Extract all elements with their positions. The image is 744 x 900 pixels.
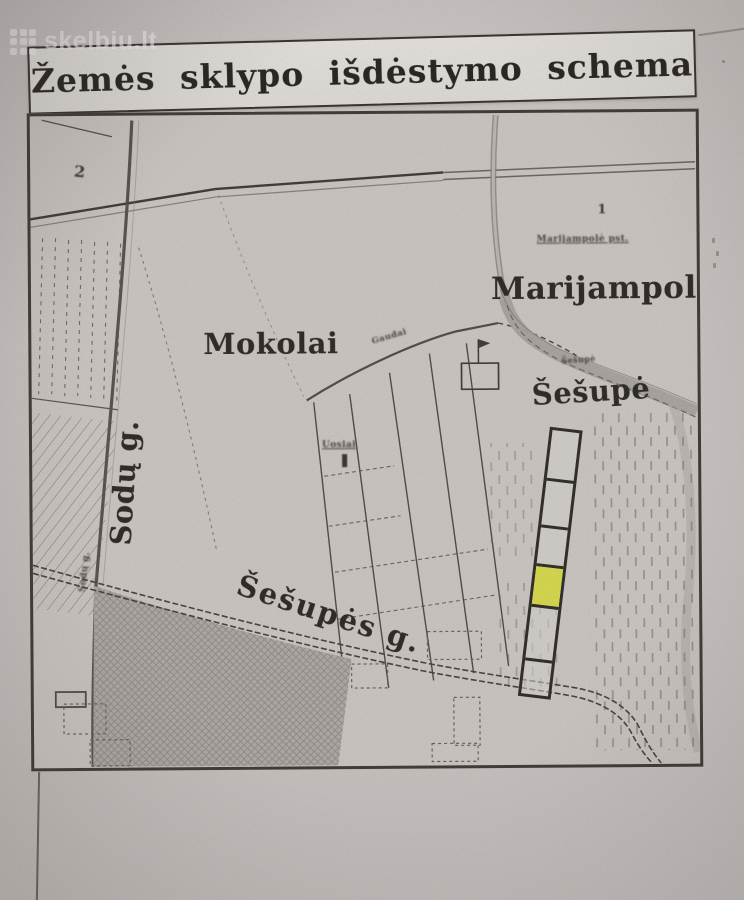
map-symbol-mark bbox=[342, 454, 347, 467]
watermark-text: skelbiu.lt bbox=[44, 27, 157, 56]
paper-speck bbox=[712, 238, 715, 243]
station-symbol: 1 bbox=[597, 202, 606, 217]
city-label-marijampole: Marijampolė bbox=[491, 270, 703, 308]
paper-edge-line bbox=[698, 28, 744, 36]
plot-cell bbox=[536, 527, 567, 569]
watermark: skelbiu.lt bbox=[10, 27, 157, 56]
river-label-sesupe: Šešupė bbox=[531, 371, 651, 412]
paper-speck bbox=[722, 60, 725, 63]
paper-speck bbox=[713, 263, 716, 268]
settlement-label-mokolai: Mokolai bbox=[203, 326, 338, 361]
table-rule-below-map bbox=[36, 772, 40, 900]
plot-block-label-small: Uosiai bbox=[322, 440, 356, 450]
plot-cell bbox=[541, 481, 573, 531]
plot-cell bbox=[521, 660, 552, 696]
dashed-boundaries-center bbox=[138, 194, 304, 551]
paper-speck bbox=[716, 251, 719, 256]
grid-marker-2: 2 bbox=[73, 161, 86, 181]
scanned-land-plot-scheme: skelbiu.lt Žemės sklypo išdėstymo schema bbox=[0, 0, 744, 900]
skelbiu-grid-logo-icon bbox=[10, 29, 36, 55]
field-boundaries-left bbox=[31, 238, 122, 411]
map-frame: 2 Mokolai 1 Marijampolė pst. Marijampolė… bbox=[27, 109, 704, 772]
plot-cell bbox=[546, 430, 579, 484]
highlighted-plot-cell bbox=[531, 566, 563, 610]
station-label-small: Marijampolė pst. bbox=[537, 234, 629, 245]
plot-cell bbox=[525, 607, 558, 664]
